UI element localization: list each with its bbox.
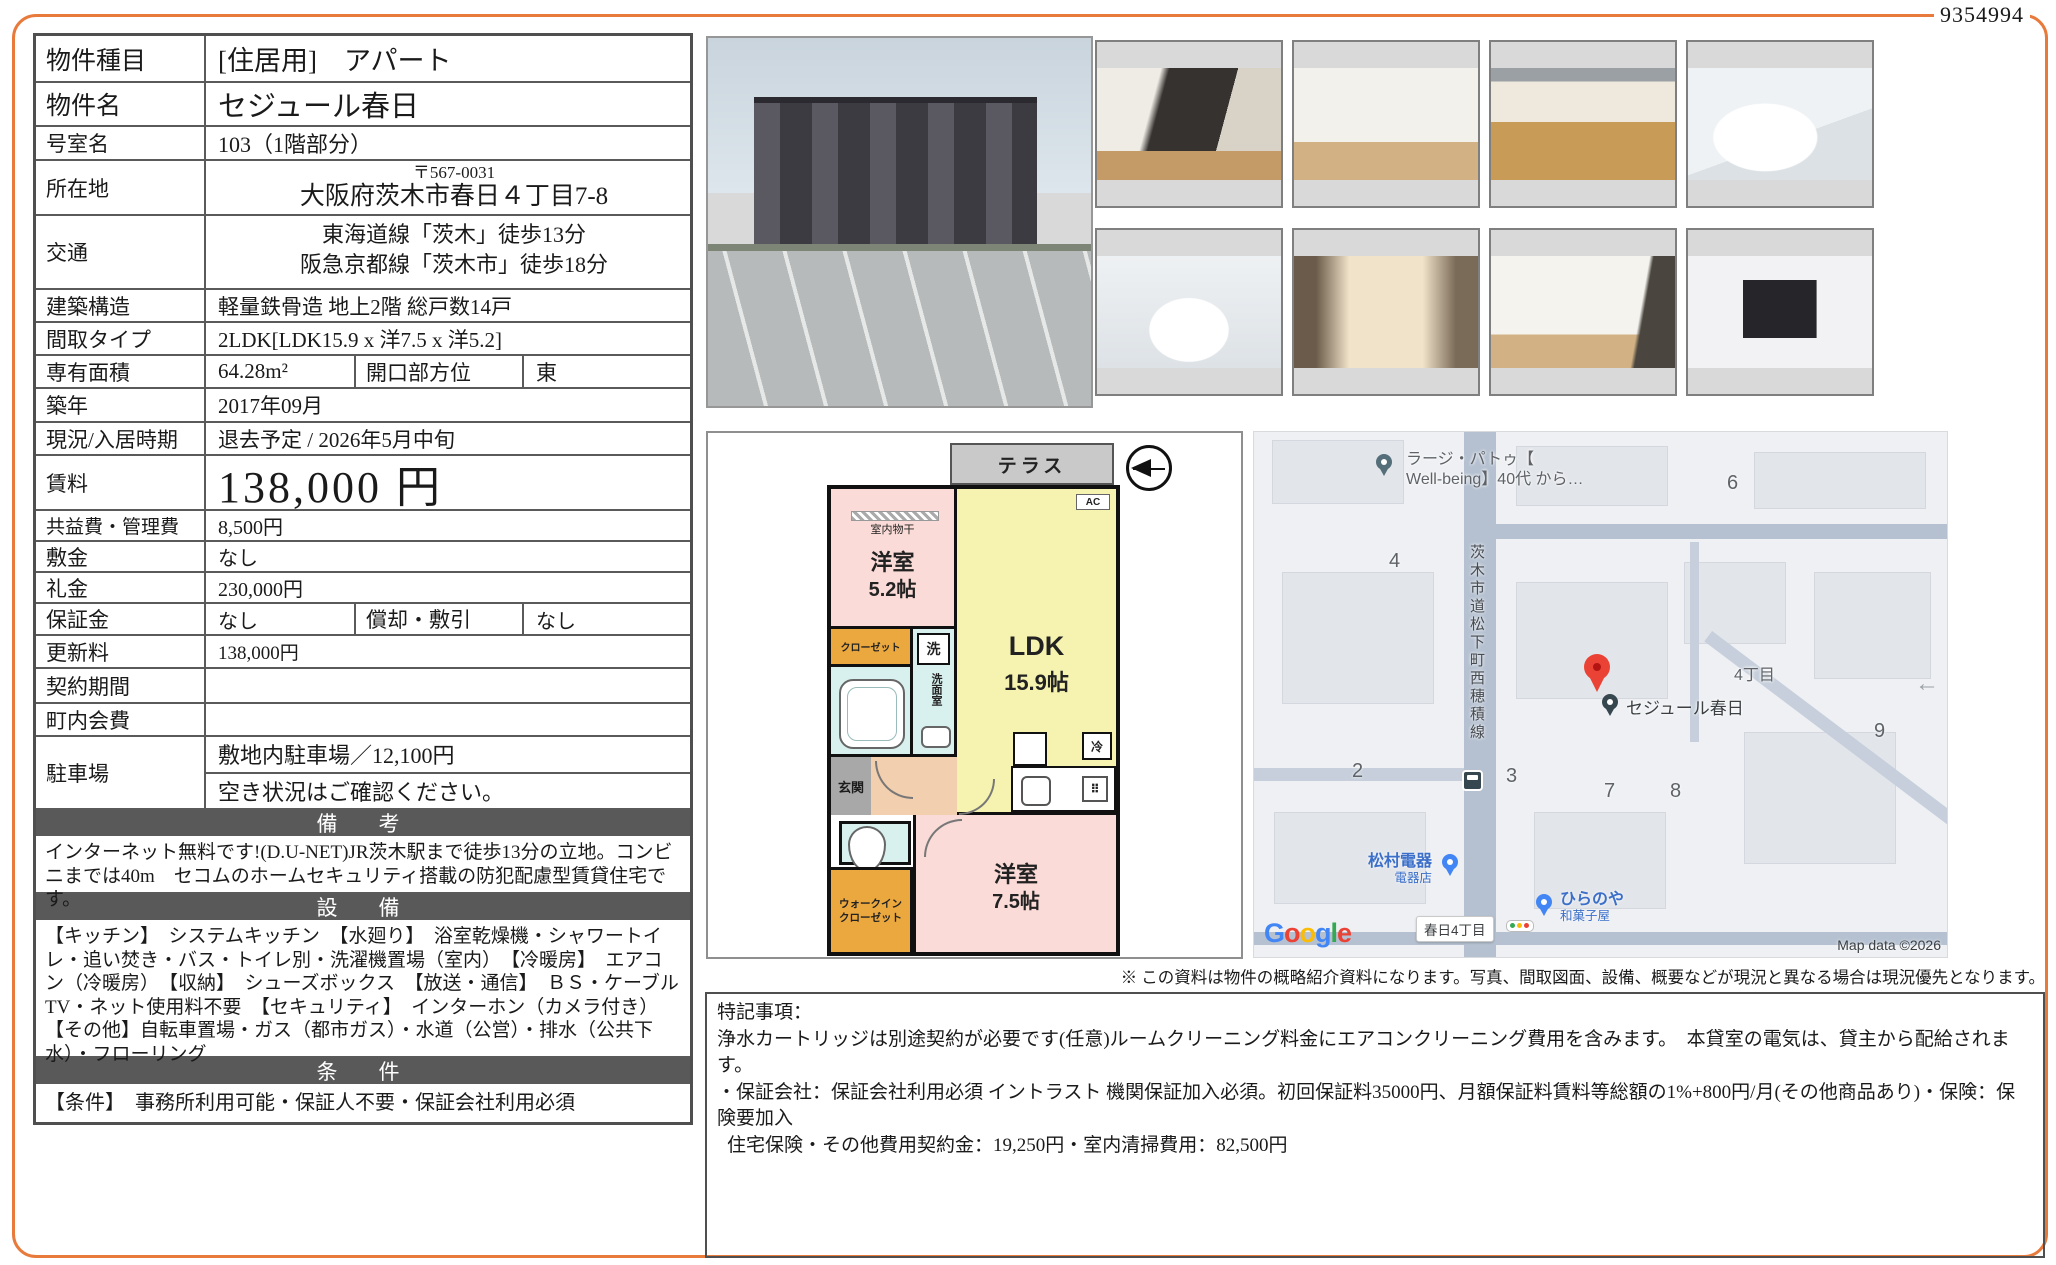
row-label: 建築構造 — [36, 290, 206, 321]
block-number-8: 8 — [1670, 780, 1681, 803]
access-line-2: 阪急京都線「茨木市」徒歩18分 — [300, 250, 608, 280]
row-neighborhood-fee: 町内会費 — [36, 704, 690, 737]
special-notes-box: 特記事項： 浄水カートリッジは別途契約が必要です(任意)ルームクリーニング料金に… — [705, 992, 2045, 1258]
access-line-1: 東海道線「茨木」徒歩13分 — [322, 220, 586, 250]
shop-pin-icon — [1442, 854, 1458, 870]
row-label: 物件名 — [36, 83, 206, 125]
row-label: 交通 — [36, 216, 206, 288]
remarks-header: 備 考 — [36, 810, 690, 836]
block-number-2: 2 — [1352, 760, 1363, 783]
shop-name: ひらのや — [1560, 891, 1624, 908]
poi-pin-icon — [1376, 454, 1392, 470]
wash-basin — [921, 726, 951, 748]
row-value: 2LDK[LDK15.9 x 洋7.5 x 洋5.2] — [206, 323, 690, 354]
photo-thumbnail-bedroom — [1489, 228, 1677, 396]
row-label: 間取タイプ — [36, 323, 206, 354]
door-arc — [924, 819, 962, 857]
shop-matsumura: 松村電器 電器店 — [1354, 852, 1432, 886]
notes-line-2: ・保証会社：保証会社利用必須 イントラスト 機関保証加入必須。初回保証料3500… — [717, 1080, 2033, 1133]
wic-label-1: ウォークイン — [831, 896, 910, 911]
toilet-room — [839, 821, 911, 865]
row-value — [206, 704, 690, 735]
amortization-value: なし — [524, 604, 690, 634]
block-number-6: 6 — [1727, 472, 1738, 495]
row-label: 号室名 — [36, 127, 206, 159]
amortization-label: 償却・敷引 — [356, 604, 524, 634]
row-label: 契約期間 — [36, 669, 206, 702]
bedroom-1: 室内物干 洋室 5.2帖 — [831, 489, 957, 629]
bathtub — [839, 679, 905, 749]
notes-line-1: 浄水カートリッジは別途契約が必要です(任意)ルームクリーニング料金にエアコンクリ… — [717, 1027, 2033, 1080]
stove: ⠿ — [1082, 776, 1108, 802]
map-building — [1282, 572, 1434, 704]
row-value: 103（1階部分） — [206, 127, 690, 159]
row-label: 物件種目 — [36, 36, 206, 81]
row-property-type: 物件種目 [住居用] アパート — [36, 36, 690, 83]
row-parking: 駐車場 敷地内駐車場／12,100円 空き状況はご確認ください。 — [36, 737, 690, 810]
poi-label-line2: Well-being】40代 から… — [1406, 470, 1584, 490]
row-label: 駐車場 — [36, 737, 206, 808]
photo-building — [754, 97, 1037, 258]
washroom: 洗 洗面室 — [913, 629, 957, 757]
row-value: 退去予定 / 2026年5月中旬 — [206, 423, 690, 454]
map-road — [1496, 524, 1948, 539]
pan-arrow-icon[interactable]: ← — [1915, 670, 1939, 698]
map-building — [1684, 562, 1786, 644]
floorplan-walls: 室内物干 洋室 5.2帖 AC LDK 15.9帖 ⠿ 冷 クローゼット 洗 — [827, 485, 1120, 956]
washroom-label: 洗面室 — [928, 673, 944, 706]
row-value: 230,000円 — [206, 573, 690, 602]
row-rent: 賃料 138,000 円 — [36, 456, 690, 511]
row-value: 8,500円 — [206, 511, 690, 540]
thumb-image — [1294, 68, 1478, 180]
row-area: 専有面積 64.28m² 開口部方位 東 — [36, 356, 690, 389]
row-value: 138,000円 — [206, 636, 690, 667]
notes-title: 特記事項： — [717, 1000, 2033, 1027]
washer-space: 洗 — [917, 633, 950, 665]
thumb-image — [1688, 68, 1872, 180]
ldk-room: AC LDK 15.9帖 ⠿ 冷 — [957, 489, 1116, 815]
parking-line-1: 敷地内駐車場／12,100円 — [206, 737, 690, 774]
thumb-image — [1491, 256, 1675, 368]
photo-parking-lot — [708, 251, 1091, 406]
road-name-label: 茨木市道松下町西穂積線 — [1466, 544, 1487, 742]
row-label: 保証金 — [36, 604, 206, 634]
conditions-text: 【条件】 事務所利用可能・保証人不要・保証会社利用必須 — [36, 1084, 690, 1122]
photo-thumbnail-living-room — [1292, 40, 1480, 208]
thumb-image — [1491, 68, 1675, 180]
row-property-name: 物件名 セジュール春日 — [36, 83, 690, 127]
property-sheet: 9354994 物件種目 [住居用] アパート 物件名 セジュール春日 号室名 … — [0, 0, 2056, 1265]
row-value — [206, 669, 690, 702]
row-label: 賃料 — [36, 456, 206, 509]
ldk-label: LDK — [957, 631, 1116, 662]
map-building — [1754, 452, 1926, 509]
block-number-3: 3 — [1506, 765, 1517, 788]
photo-thumbnail-bathroom — [1686, 40, 1874, 208]
street-address: 大阪府茨木市春日４丁目7-8 — [300, 183, 608, 211]
kitchen-counter: ⠿ — [1011, 766, 1116, 812]
block-number-7: 7 — [1604, 780, 1615, 803]
block-number-4: 4 — [1389, 550, 1400, 573]
row-renewal-fee: 更新料 138,000円 — [36, 636, 690, 669]
bus-stop-label: 春日4丁目 — [1416, 916, 1494, 942]
thumb-image — [1097, 256, 1281, 368]
row-label: 所在地 — [36, 161, 206, 214]
entrance: 玄関 — [831, 757, 871, 815]
shop-pin-icon — [1536, 894, 1552, 910]
row-value: [住居用] アパート — [206, 36, 690, 81]
walk-in-closet: ウォークイン クローゼット — [831, 867, 913, 952]
google-logo: Google — [1264, 918, 1351, 949]
property-map-label: セジュール春日 — [1626, 694, 1744, 719]
row-value: なし — [206, 542, 690, 571]
shop-type: 電器店 — [1354, 871, 1432, 886]
map-copyright: Map data ©2026 — [1837, 937, 1941, 953]
equipment-header: 設 備 — [36, 894, 690, 920]
postal-code: 〒567-0031 — [413, 164, 495, 183]
equipment-text: 【キッチン】 システムキッチン 【水廻り】 浴室乾燥機・シャワートイレ・追い焚き… — [36, 920, 690, 1058]
dining-table — [1013, 732, 1047, 766]
photo-thumbnail-intercom — [1686, 228, 1874, 396]
drying-pole — [851, 511, 939, 521]
area-value: 64.28m² — [206, 356, 356, 387]
row-value: 東海道線「茨木」徒歩13分 阪急京都線「茨木市」徒歩18分 — [206, 216, 690, 288]
poi-label-line1: ラージ・パトゥ【 — [1406, 450, 1534, 470]
row-contract-term: 契約期間 — [36, 669, 690, 704]
row-value: セジュール春日 — [206, 83, 690, 125]
toilet-bowl — [848, 826, 886, 872]
bedroom-2: 洋室 7.5帖 — [913, 815, 1116, 952]
kitchen-sink — [1021, 776, 1051, 806]
notes-line-3: 住宅保険・その他費用契約金：19,250円・室内清掃費用：82,500円 — [717, 1133, 2033, 1160]
parking-line-2: 空き状況はご確認ください。 — [206, 774, 690, 809]
row-room-no: 号室名 103（1階部分） — [36, 127, 690, 161]
thumb-image — [1688, 256, 1872, 368]
row-value: 〒567-0031 大阪府茨木市春日４丁目7-8 — [206, 161, 690, 214]
bedroom-2-size: 7.5帖 — [916, 885, 1116, 914]
row-label: 築年 — [36, 389, 206, 421]
fridge-space: 冷 — [1082, 732, 1112, 760]
traffic-signal-icon — [1506, 920, 1534, 932]
bus-stop-icon — [1462, 770, 1483, 791]
wic-label-2: クローゼット — [831, 910, 910, 925]
row-guarantee: 保証金 なし 償却・敷引 なし — [36, 604, 690, 636]
floor-plan: テラス 室内物干 洋室 5.2帖 AC LDK 15.9帖 ⠿ — [706, 431, 1243, 959]
row-label: 敷金 — [36, 542, 206, 571]
row-built-year: 築年 2017年09月 — [36, 389, 690, 423]
district-label: 4丁目 — [1734, 666, 1775, 686]
facing-value: 東 — [524, 356, 690, 387]
listing-id: 9354994 — [1934, 2, 2030, 28]
map-building — [1814, 572, 1931, 679]
rent-amount: 138,000 円 — [206, 456, 690, 509]
row-deposit: 敷金 なし — [36, 542, 690, 573]
bedroom-1-size: 5.2帖 — [831, 573, 954, 602]
compass-arrow — [1131, 459, 1151, 477]
parking-values: 敷地内駐車場／12,100円 空き状況はご確認ください。 — [206, 737, 690, 808]
bathroom — [831, 667, 913, 757]
shop-hiranoya: ひらのや 和菓子屋 — [1560, 890, 1624, 924]
guarantee-value: なし — [206, 604, 356, 634]
shop-name: 松村電器 — [1368, 853, 1432, 870]
row-label: 礼金 — [36, 573, 206, 602]
row-access: 交通 東海道線「茨木」徒歩13分 阪急京都線「茨木市」徒歩18分 — [36, 216, 690, 290]
row-label: 更新料 — [36, 636, 206, 667]
block-number-9: 9 — [1874, 720, 1885, 743]
closet: クローゼット — [831, 629, 913, 667]
disclaimer-text: ※ この資料は物件の概略紹介資料になります。写真、間取図面、設備、概要などが現況… — [705, 964, 2045, 988]
photo-exterior — [706, 36, 1093, 408]
ac-unit: AC — [1076, 494, 1110, 510]
row-label: 共益費・管理費 — [36, 511, 206, 540]
row-common-fee: 共益費・管理費 8,500円 — [36, 511, 690, 542]
property-pin-icon — [1602, 694, 1618, 710]
property-location-pin — [1584, 654, 1610, 680]
remarks-text: インターネット無料です!(D.U-NET)JR茨木駅まで徒歩13分の立地。コンビ… — [36, 836, 690, 894]
shop-type: 和菓子屋 — [1560, 909, 1624, 924]
property-table: 物件種目 [住居用] アパート 物件名 セジュール春日 号室名 103（1階部分… — [33, 33, 693, 1125]
facing-label: 開口部方位 — [356, 356, 524, 387]
row-label: 現況/入居時期 — [36, 423, 206, 454]
photo-thumbnail-hallway — [1095, 40, 1283, 208]
photo-thumbnail-kitchen — [1489, 40, 1677, 208]
row-layout: 間取タイプ 2LDK[LDK15.9 x 洋7.5 x 洋5.2] — [36, 323, 690, 356]
thumb-image — [1097, 68, 1281, 180]
row-label: 専有面積 — [36, 356, 206, 387]
photo-thumbnail-washroom — [1292, 228, 1480, 396]
indoor-drying-label: 室内物干 — [831, 521, 954, 537]
row-key-money: 礼金 230,000円 — [36, 573, 690, 604]
photo-thumbnail-toilet — [1095, 228, 1283, 396]
row-value: 2017年09月 — [206, 389, 690, 421]
row-label: 町内会費 — [36, 704, 206, 735]
row-structure: 建築構造 軽量鉄骨造 地上2階 総戸数14戸 — [36, 290, 690, 323]
row-value: 軽量鉄骨造 地上2階 総戸数14戸 — [206, 290, 690, 321]
map-canvas[interactable]: 茨木市道松下町西穂積線 ラージ・パトゥ【 Well-being】40代 から… … — [1253, 431, 1948, 958]
compass-icon — [1126, 445, 1172, 491]
thumb-image — [1294, 256, 1478, 368]
row-address: 所在地 〒567-0031 大阪府茨木市春日４丁目7-8 — [36, 161, 690, 216]
terrace: テラス — [950, 443, 1114, 485]
ldk-size: 15.9帖 — [957, 665, 1116, 697]
